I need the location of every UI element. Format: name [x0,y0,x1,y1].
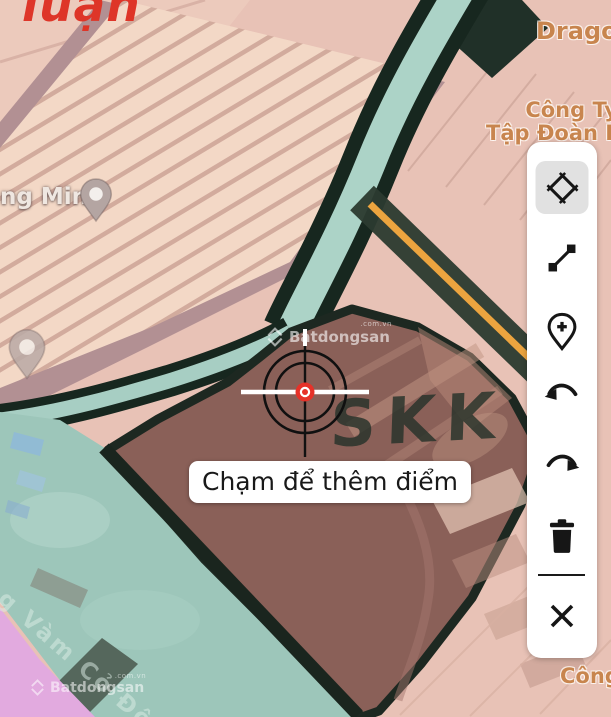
measure-toolbar [527,142,597,658]
toolbar-divider [538,574,585,576]
map-measure-screen: luận Dragon Công Ty Tập Đoàn H ng Minh S… [0,0,611,717]
close-x-icon [546,600,578,632]
redo-arrow-icon [544,448,580,474]
polygon-area-icon [543,169,581,207]
measure-area-button[interactable] [536,161,589,214]
line-distance-icon [545,241,579,275]
undo-button[interactable] [538,366,586,414]
add-point-tooltip: Chạm để thêm điểm [189,461,471,503]
trash-icon [545,517,579,554]
measure-distance-button[interactable] [538,234,586,282]
pin-plus-icon [544,312,580,351]
close-button[interactable] [538,592,586,640]
delete-button[interactable] [538,511,586,559]
add-point-button[interactable] [538,307,586,355]
satellite-map[interactable] [0,0,611,717]
undo-arrow-icon [544,377,580,403]
redo-button[interactable] [538,437,586,485]
